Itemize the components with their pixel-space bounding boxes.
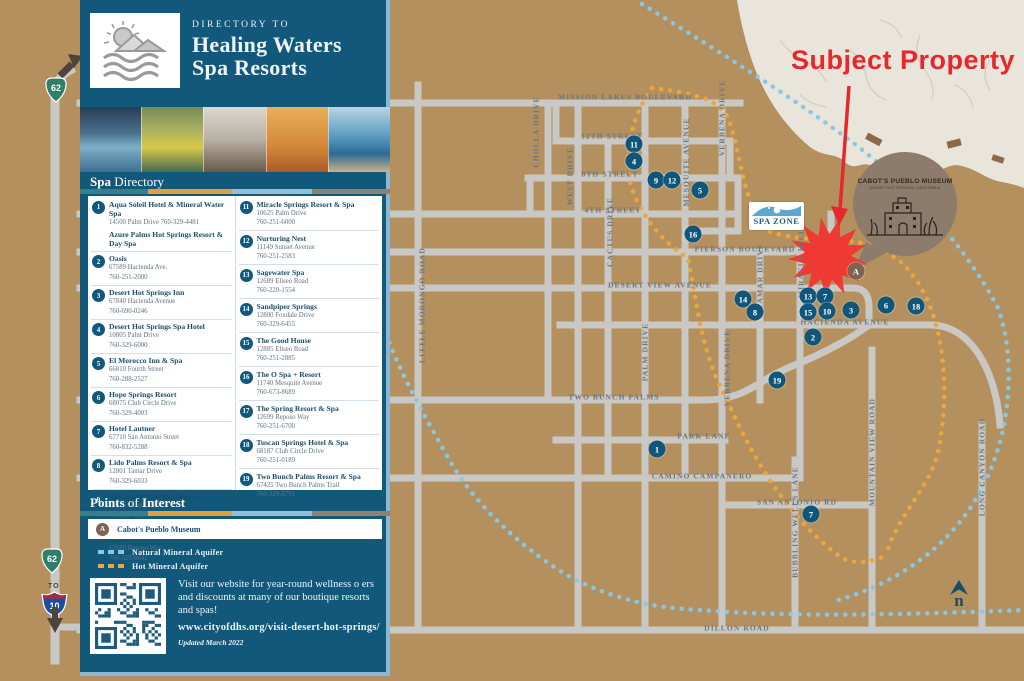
- directory-entry: 3Desert Hot Springs Inn67840 Hacienda Av…: [91, 286, 232, 320]
- footer: Visit our website for year-round wellnes…: [178, 578, 382, 647]
- qr-code: [90, 578, 166, 654]
- entry-text: Desert Hot Springs Spa Hotel10805 Palm D…: [109, 322, 205, 350]
- directory-sidebar: DIRECTORY TO Healing Waters Spa Resorts …: [80, 0, 390, 676]
- svg-text:62: 62: [47, 554, 57, 564]
- legend-row: Natural Mineral Aquifer: [98, 545, 223, 559]
- directory-entry: 17The Spring Resort & Spa12699 Reposo Wa…: [239, 401, 380, 435]
- healing-waters-logo: [90, 13, 180, 88]
- directory-entry: 19Two Bunch Palms Resort & Spa67425 Two …: [239, 469, 380, 502]
- route-arrow-down-icon: [46, 607, 64, 635]
- svg-text:62: 62: [51, 83, 61, 93]
- photo-strip: [80, 107, 390, 172]
- entry-text: Tuscan Springs Hotel & Spa68187 Club Cir…: [257, 438, 349, 466]
- museum-title: CABOT'S PUEBLO MUSEUM: [853, 178, 957, 185]
- header-eyebrow: DIRECTORY TO: [192, 20, 342, 30]
- footer-blurb: Visit our website for year-round wellnes…: [178, 578, 382, 617]
- subject-property-label: Subject Property: [791, 45, 1015, 76]
- legend-row: Hot Mineral Aquifer: [98, 559, 223, 573]
- accent-stripe: [80, 511, 390, 516]
- map-legend: Natural Mineral AquiferHot Mineral Aquif…: [98, 545, 223, 573]
- museum-sketch-icon: [863, 193, 947, 239]
- spa-zone-wave-icon: [749, 202, 804, 216]
- entry-number-badge: 16: [240, 371, 253, 384]
- footer-updated: Updated March 2022: [178, 638, 382, 647]
- entry-number-badge: 3: [92, 289, 105, 302]
- entry-number-badge: 14: [240, 303, 253, 316]
- poi-marker-badge: A: [96, 523, 109, 536]
- poi-name: Cabot's Pueblo Museum: [117, 525, 201, 534]
- directory-column-right: 11Miracle Springs Resort & Spa10625 Palm…: [235, 196, 383, 490]
- entry-text: Hope Springs Resort68075 Club Circle Dri…: [109, 390, 177, 418]
- entry-text: El Morocco Inn & Spa66810 Fourth Street7…: [109, 356, 182, 384]
- entry-text: Oasis67589 Hacienda Ave.760-251-2000: [109, 254, 167, 282]
- entry-number-badge: 17: [240, 405, 253, 418]
- directory-entry: 7Hotel Lautner67710 San Antonio Street76…: [91, 422, 232, 456]
- entry-number-badge: 15: [240, 337, 253, 350]
- directory-entry: 16The O Spa + Resort11740 Mesquite Avenu…: [239, 367, 380, 401]
- header-title-line1: Healing Waters: [192, 33, 342, 56]
- entry-text: Aqua Soleil Hotel & Mineral Water Spa145…: [109, 200, 231, 249]
- directory-entry: 2Oasis67589 Hacienda Ave.760-251-2000: [91, 252, 232, 286]
- legend-label: Hot Mineral Aquifer: [132, 562, 208, 571]
- entry-number-badge: 13: [240, 269, 253, 282]
- spa-photo-garden: [141, 107, 203, 172]
- entry-text: Lido Palms Resort & Spa12801 Tamar Drive…: [109, 458, 192, 486]
- spa-photo-pool: [80, 107, 141, 172]
- north-arrow: n: [948, 580, 970, 607]
- entry-text: The Spring Resort & Spa12699 Reposo Way7…: [257, 404, 339, 432]
- to-label: TO: [48, 583, 60, 590]
- directory-header: DIRECTORY TO Healing Waters Spa Resorts: [192, 20, 342, 79]
- entry-number-badge: 12: [240, 235, 253, 248]
- directory-entry: 18Tuscan Springs Hotel & Spa68187 Club C…: [239, 435, 380, 469]
- entry-number-badge: 5: [92, 357, 105, 370]
- entry-number-badge: 1: [92, 201, 105, 214]
- spa-photo-fireplace: [203, 107, 265, 172]
- entry-number-badge: 4: [92, 323, 105, 336]
- directory-entry: 12Nurturing Nest11149 Sunset Avenue760-2…: [239, 231, 380, 265]
- north-letter: n: [948, 595, 970, 607]
- spa-directory-list: 1Aqua Soleil Hotel & Mineral Water Spa14…: [88, 196, 382, 490]
- entry-number-badge: 2: [92, 255, 105, 268]
- spa-directory-heading: Spa Directory: [90, 174, 164, 190]
- entry-number-badge: 18: [240, 439, 253, 452]
- entry-text: Nurturing Nest11149 Sunset Avenue760-251…: [257, 234, 315, 262]
- entry-number-badge: 11: [240, 201, 253, 214]
- directory-entry: 15The Good House12885 Eliseo Road760-251…: [239, 333, 380, 367]
- sun-mountain-waves-icon: [90, 13, 180, 88]
- museum-subtitle: DESERT HOT SPRINGS, CALIFORNIA: [853, 186, 957, 190]
- directory-column-left: 1Aqua Soleil Hotel & Mineral Water Spa14…: [88, 196, 235, 490]
- spa-directory-bold: Spa: [90, 174, 111, 189]
- directory-entry: 14Sandpiper Springs12800 Foxdale Drive76…: [239, 299, 380, 333]
- legend-label: Natural Mineral Aquifer: [132, 548, 223, 557]
- entry-number-badge: 6: [92, 391, 105, 404]
- poi-list-item: A Cabot's Pueblo Museum: [88, 519, 382, 539]
- spa-photo-salt-wall: [266, 107, 328, 172]
- spa-photo-lounge: [328, 107, 390, 172]
- route-62-shield-bottom: 62: [40, 548, 64, 575]
- directory-entry: 6Hope Springs Resort68075 Club Circle Dr…: [91, 388, 232, 422]
- entry-text: The Good House12885 Eliseo Road760-251-2…: [257, 336, 311, 364]
- footer-url: www.cityofdhs.org/visit-desert-hot-sprin…: [178, 622, 382, 633]
- spa-directory-regular: Directory: [111, 174, 164, 189]
- entry-text: Two Bunch Palms Resort & Spa67425 Two Bu…: [257, 472, 361, 500]
- spa-zone-label: SPA ZONE: [749, 216, 804, 226]
- route-62-shield-top: 62: [44, 77, 68, 104]
- map-poster: CABOT'S PUEBLO MUSEUM DESERT HOT SPRINGS…: [0, 0, 1024, 681]
- directory-entry: 11Miracle Springs Resort & Spa10625 Palm…: [239, 197, 380, 231]
- poi-mid: of: [125, 495, 142, 510]
- directory-entry: 8Lido Palms Resort & Spa12801 Tamar Driv…: [91, 456, 232, 490]
- entry-number-badge: 19: [240, 473, 253, 486]
- poi-bold1: Points: [90, 495, 125, 510]
- museum-bubble: CABOT'S PUEBLO MUSEUM DESERT HOT SPRINGS…: [853, 152, 957, 256]
- points-of-interest-heading: Points of Interest: [90, 495, 185, 511]
- directory-entry: 4Desert Hot Springs Spa Hotel10805 Palm …: [91, 320, 232, 354]
- entry-text: Miracle Springs Resort & Spa10625 Palm D…: [257, 200, 355, 228]
- legend-dash-swatch: [98, 550, 124, 554]
- entry-text: Sandpiper Springs12800 Foxdale Drive760-…: [257, 302, 317, 330]
- entry-text: Hotel Lautner67710 San Antonio Street760…: [109, 424, 179, 452]
- directory-entry: 1Aqua Soleil Hotel & Mineral Water Spa14…: [91, 197, 232, 252]
- legend-dash-swatch: [98, 564, 124, 568]
- directory-entry: 5El Morocco Inn & Spa66810 Fourth Street…: [91, 354, 232, 388]
- poi-bold2: Interest: [142, 495, 185, 510]
- entry-text: The O Spa + Resort11740 Mesquite Avenue7…: [257, 370, 323, 398]
- directory-entry: 13Sagewater Spa12689 Eliseo Road760-220-…: [239, 265, 380, 299]
- entry-text: Sagewater Spa12689 Eliseo Road760-220-15…: [257, 268, 309, 296]
- accent-stripe: [80, 189, 390, 194]
- entry-text: Desert Hot Springs Inn67840 Hacienda Ave…: [109, 288, 184, 316]
- header-title-line2: Spa Resorts: [192, 56, 342, 79]
- entry-number-badge: 8: [92, 459, 105, 472]
- entry-number-badge: 7: [92, 425, 105, 438]
- spa-zone-logo: SPA ZONE: [749, 202, 804, 230]
